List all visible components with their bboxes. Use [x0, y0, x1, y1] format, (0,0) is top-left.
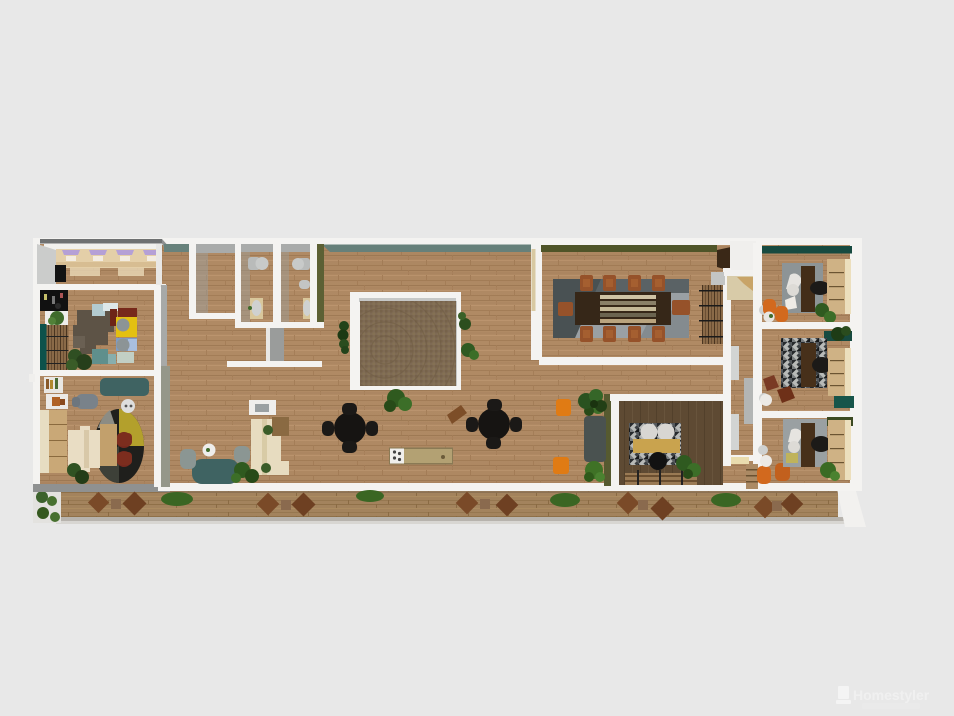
- svg-text:Homestyler: Homestyler: [853, 687, 930, 703]
